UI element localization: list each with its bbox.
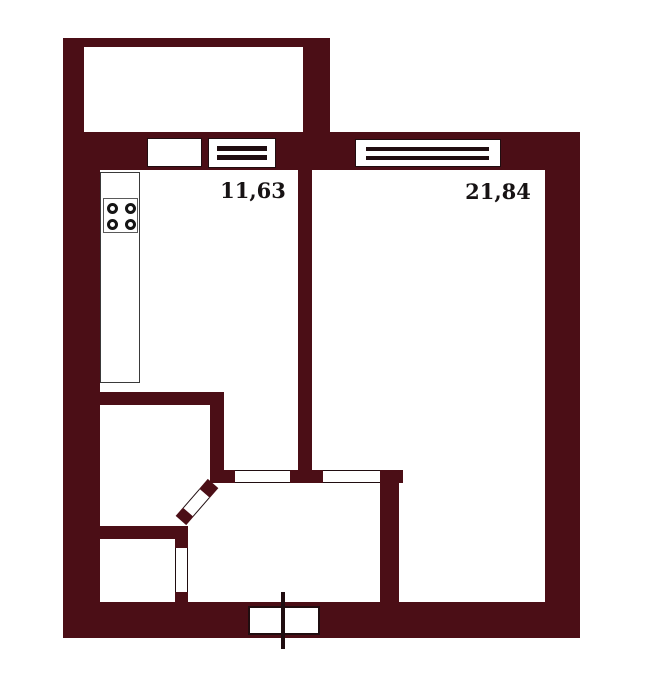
bathroom-top-wall — [100, 392, 224, 405]
living-room-door-opening — [323, 470, 380, 483]
balcony-parapet-right — [303, 38, 330, 138]
burner-icon — [107, 203, 118, 214]
outer-wall-right — [545, 132, 580, 638]
burner-icon — [125, 203, 136, 214]
toilet-wall-upper — [175, 526, 188, 548]
balcony-parapet-left — [63, 38, 84, 138]
toilet-wall-lower — [175, 592, 188, 604]
balcony-parapet-top — [63, 38, 330, 47]
burner-icon — [107, 219, 118, 230]
hall-wall-segment-center — [290, 470, 323, 483]
kitchen-area-label: 11,63 — [210, 179, 296, 203]
window-pane-line — [366, 147, 489, 151]
hall-right-wall — [380, 470, 399, 602]
bathroom-right-wall — [210, 392, 224, 483]
living-room-window-icon — [355, 139, 501, 167]
window-pane-line — [366, 156, 489, 160]
window-pane-line — [217, 146, 267, 151]
outer-wall-bottom — [63, 602, 580, 638]
kitchen-window-icon — [208, 138, 276, 168]
burner-icon — [125, 219, 136, 230]
entry-door-axis-line — [281, 592, 285, 649]
bathroom-bottom-wall — [100, 526, 180, 539]
kitchen-door-opening — [235, 470, 290, 483]
toilet-door-opening — [175, 548, 188, 592]
living-room-area-label: 21,84 — [455, 180, 541, 204]
bathroom-diagonal-door — [176, 479, 219, 525]
kitchen-living-divider-wall — [298, 168, 312, 470]
balcony-door-opening — [147, 138, 202, 167]
window-pane-line — [217, 155, 267, 160]
stove-4-burner-icon — [103, 198, 138, 233]
floor-plan: 11,63 21,84 — [0, 0, 651, 700]
outer-wall-top — [63, 132, 580, 170]
outer-wall-left — [63, 132, 100, 638]
